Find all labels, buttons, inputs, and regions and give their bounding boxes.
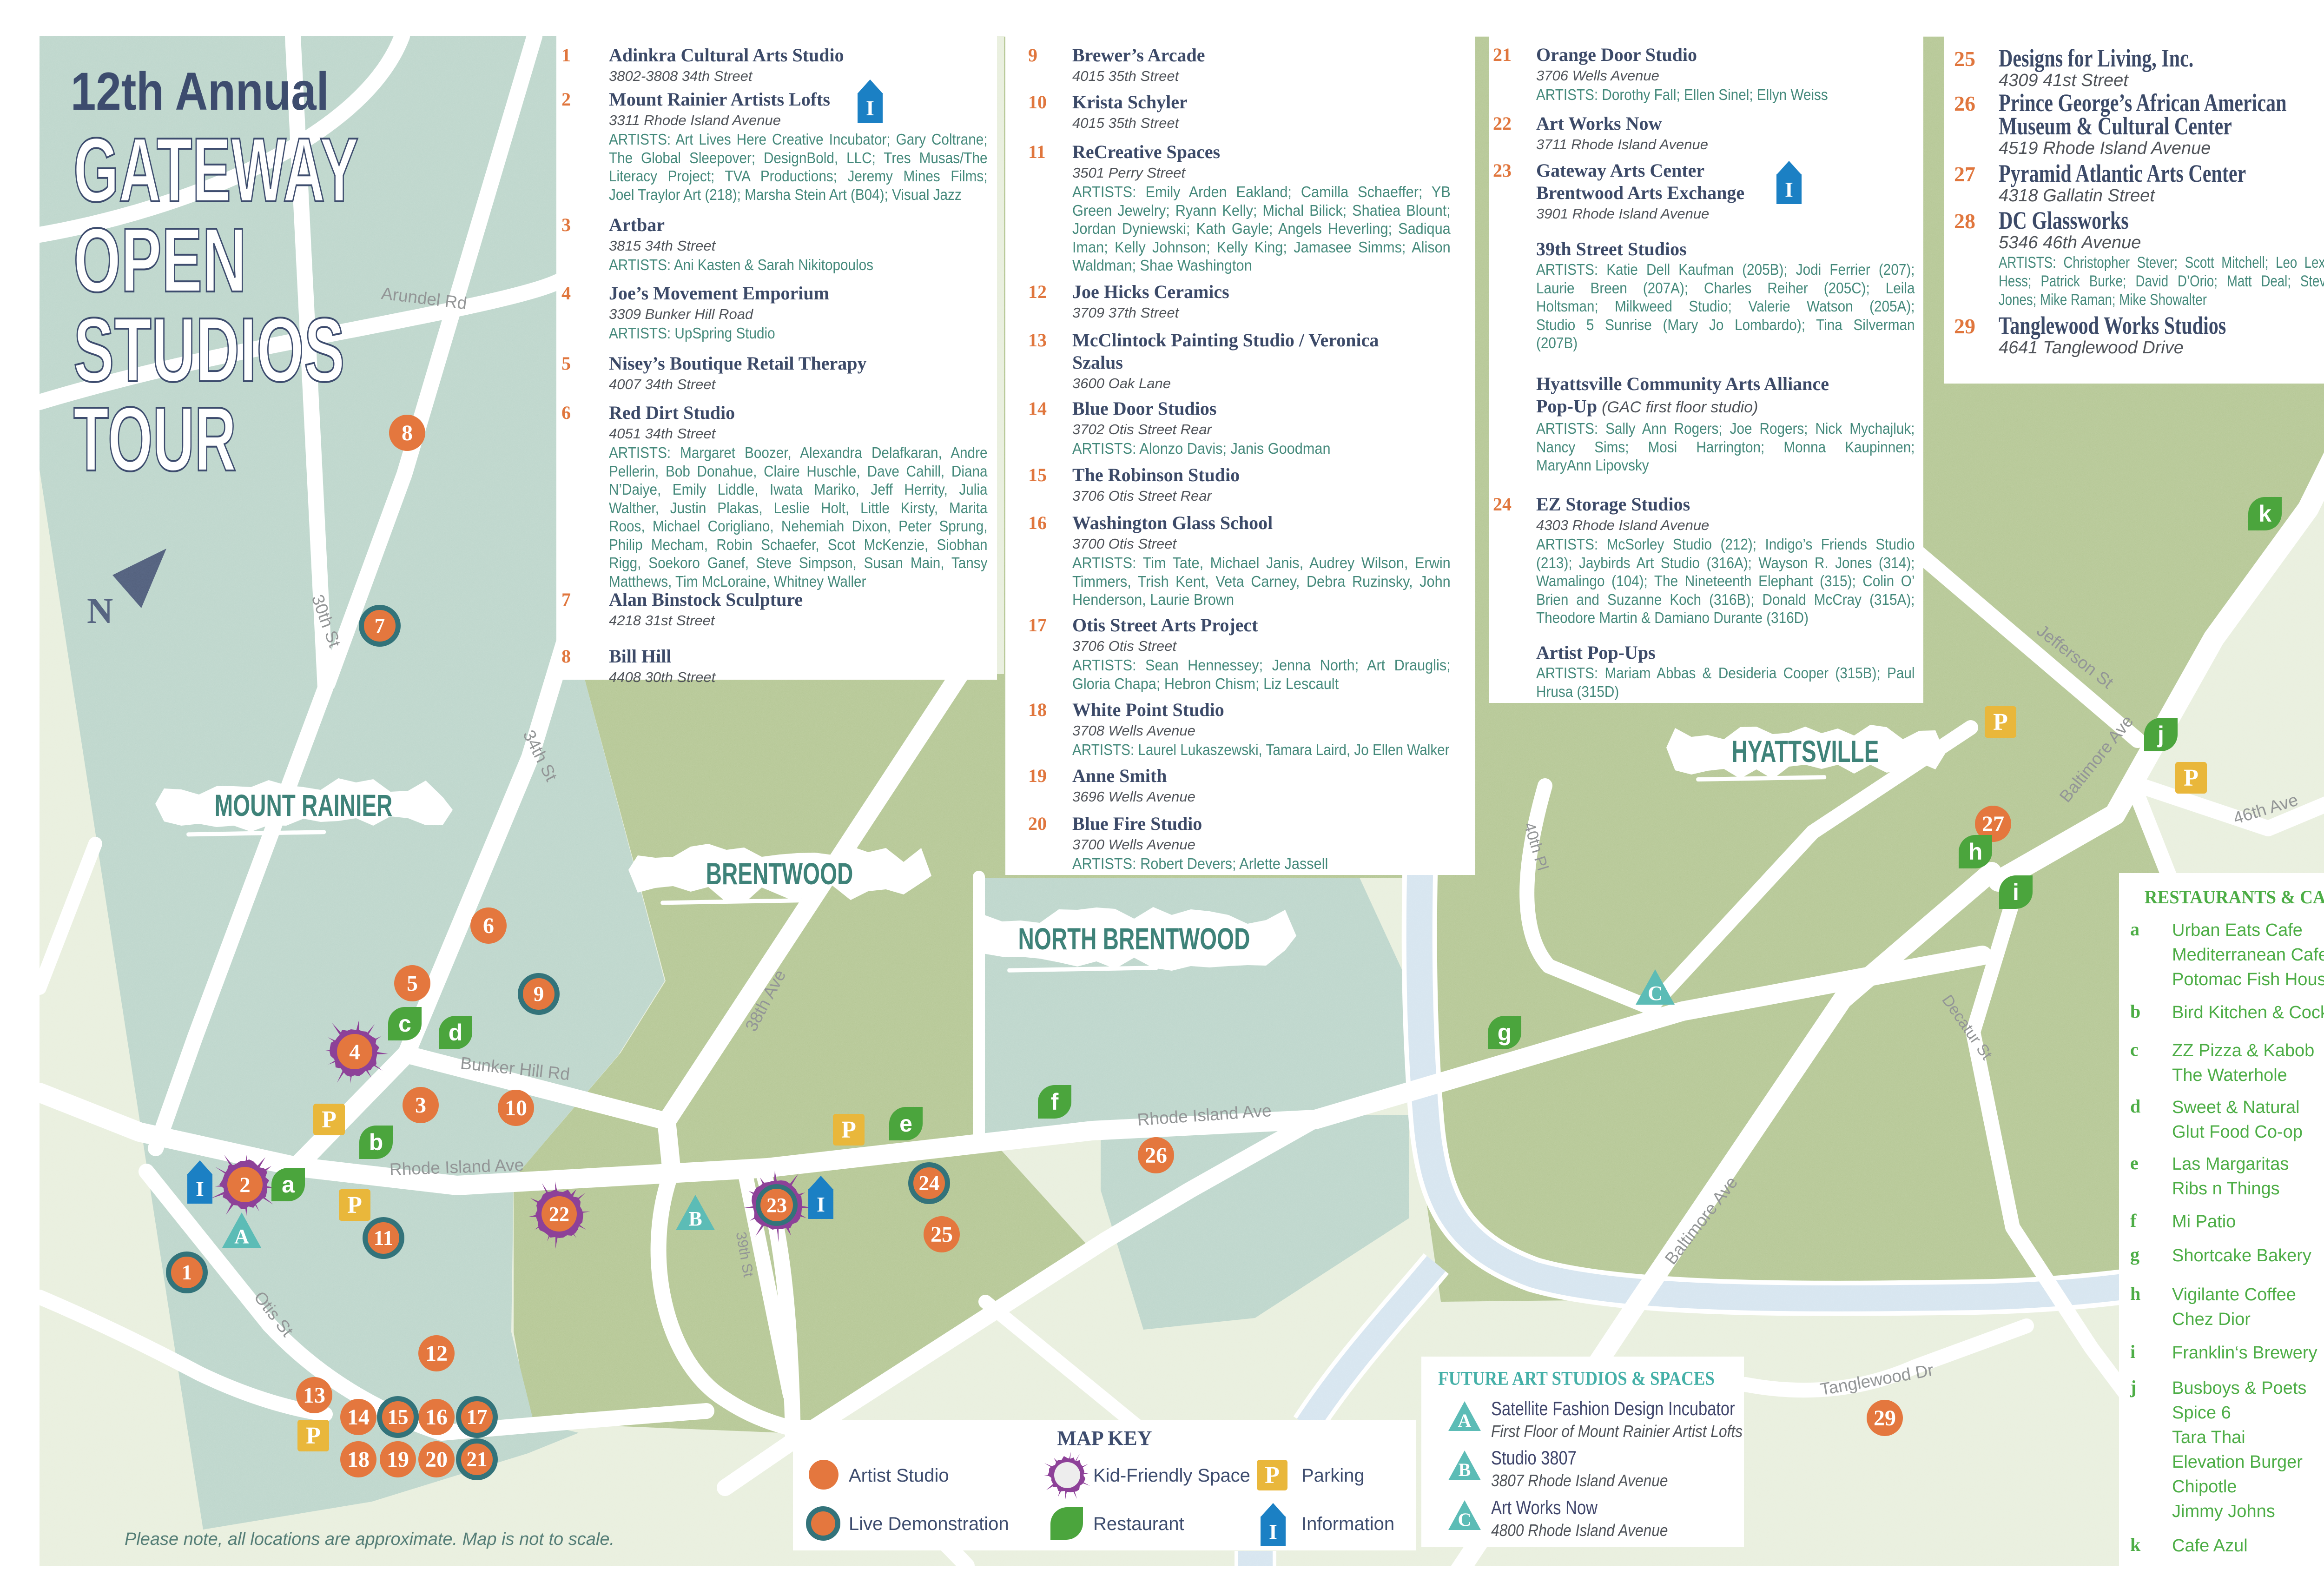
svg-text:4: 4 bbox=[349, 1040, 360, 1064]
svg-text:23: 23 bbox=[766, 1194, 787, 1217]
svg-text:2: 2 bbox=[239, 1173, 251, 1197]
svg-text:22: 22 bbox=[549, 1203, 569, 1225]
